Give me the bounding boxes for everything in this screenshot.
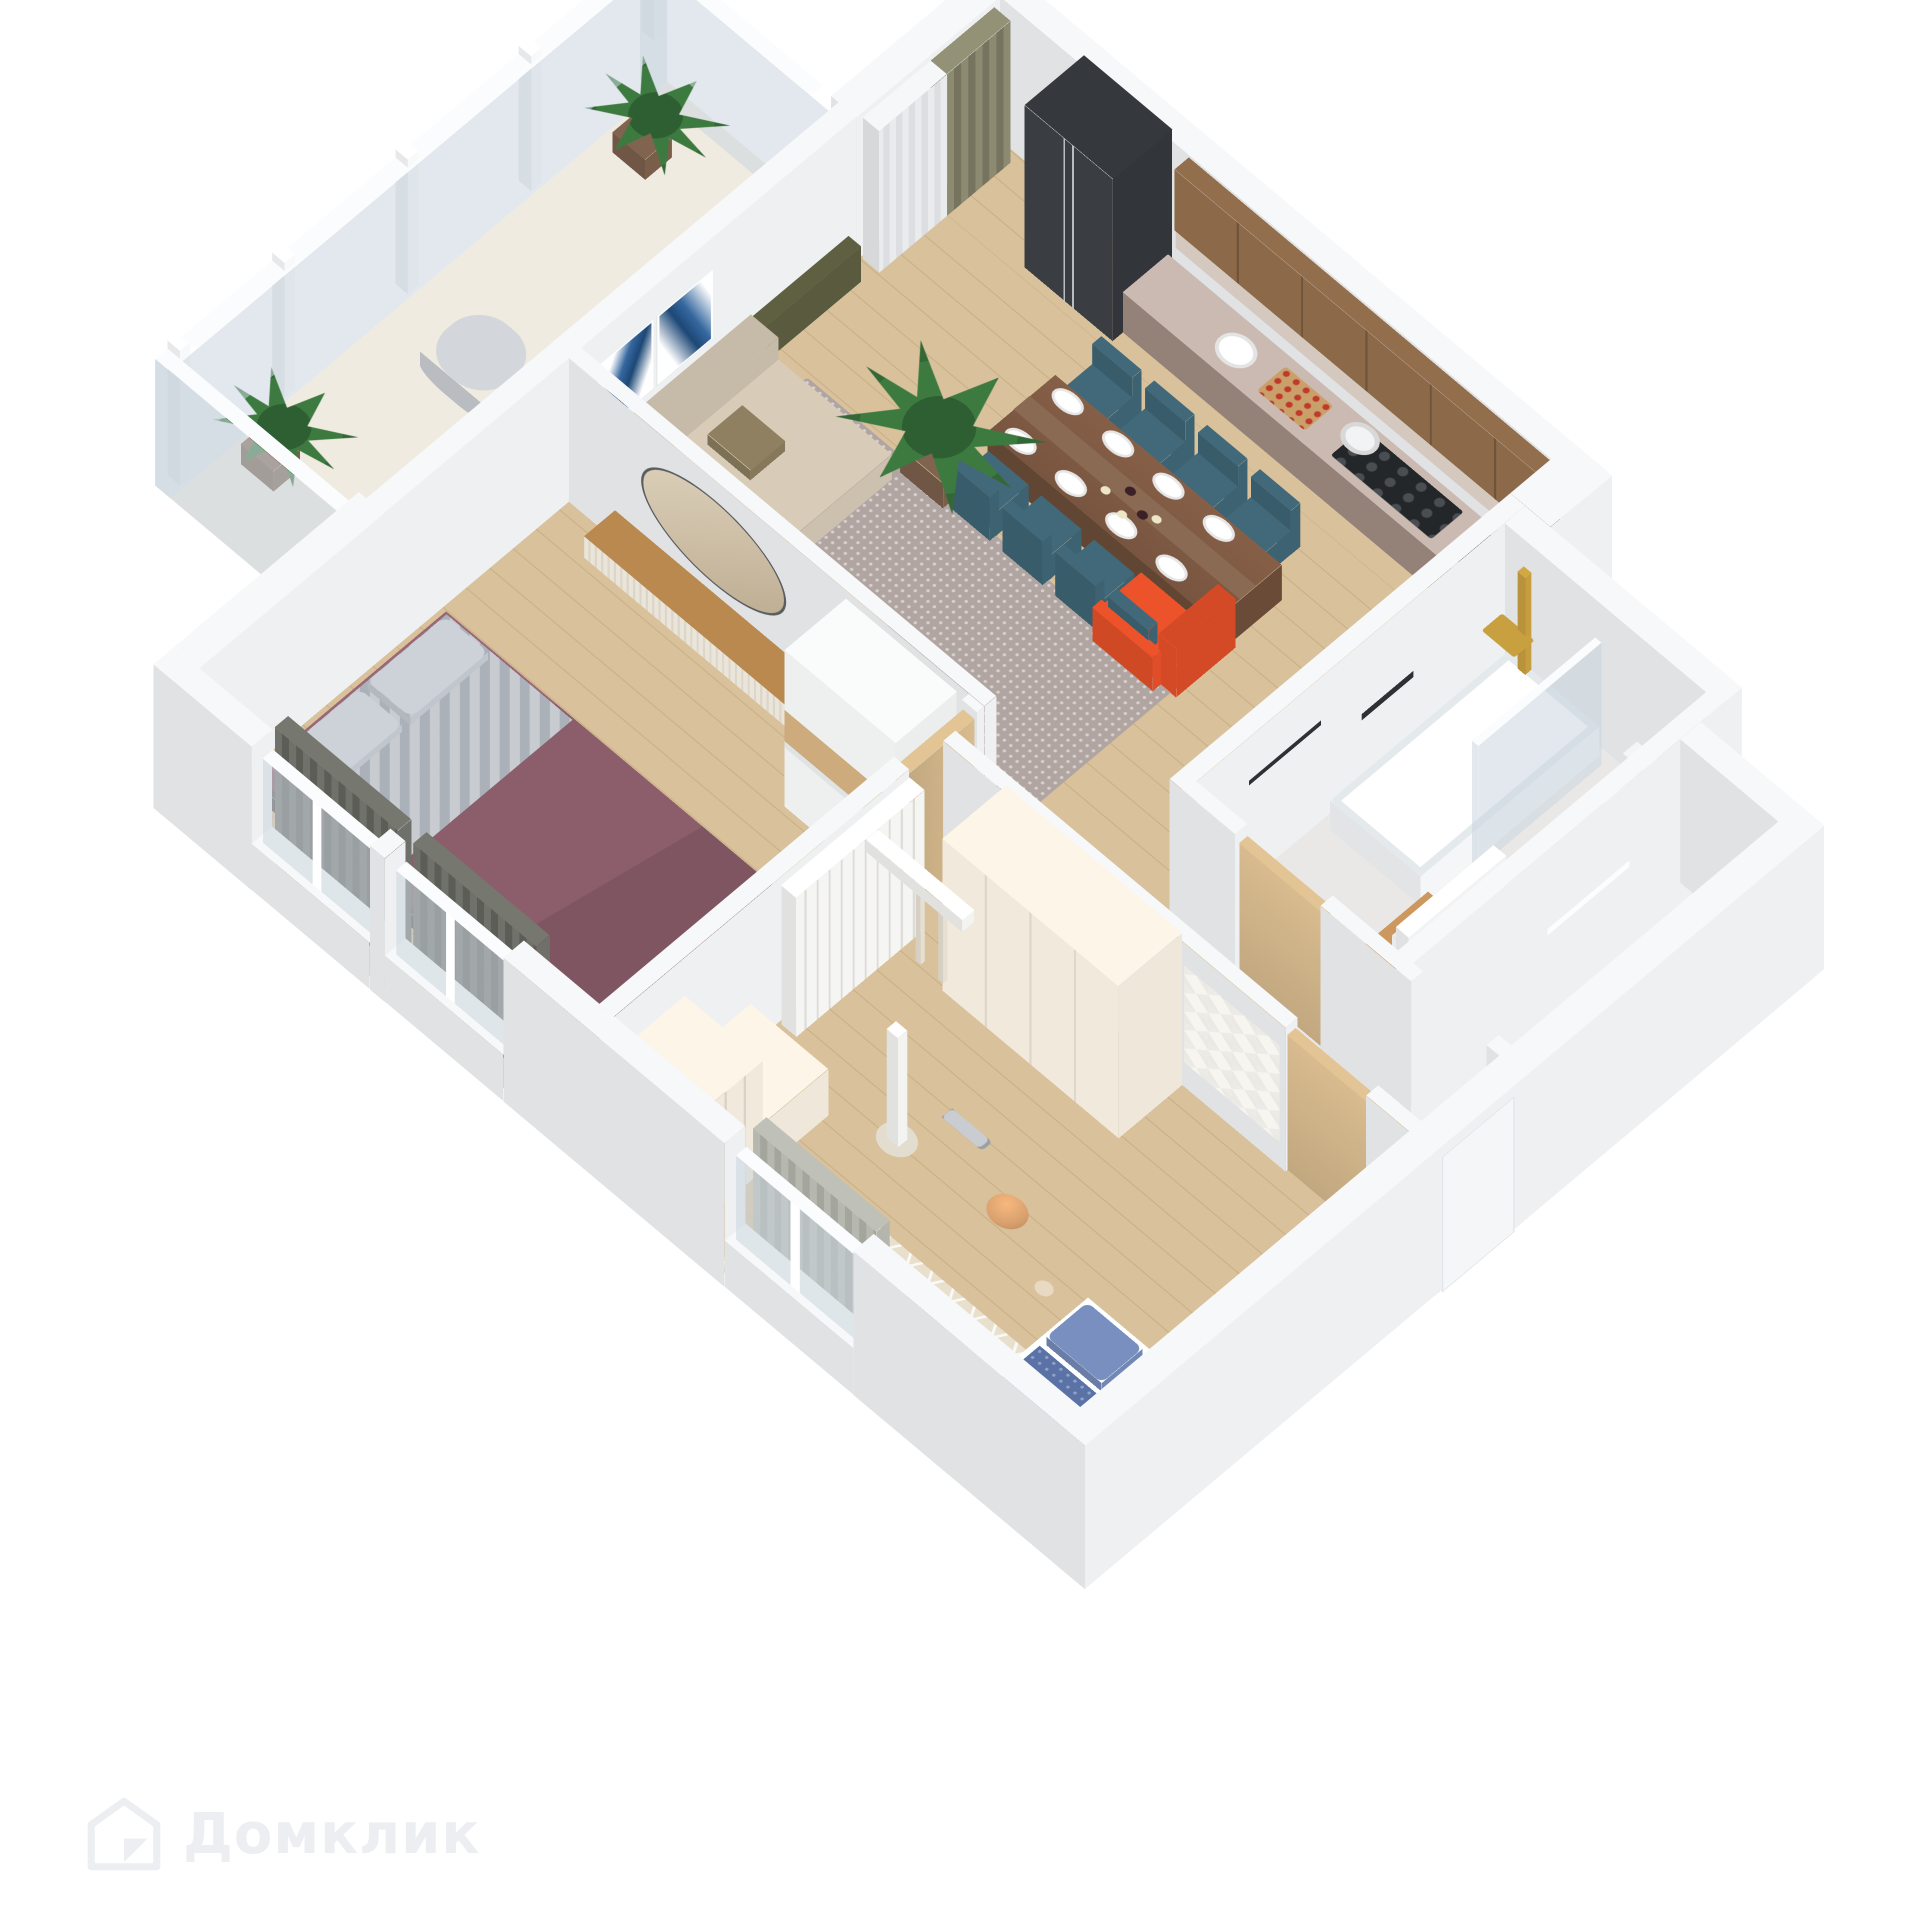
watermark: Домклик <box>85 1795 480 1873</box>
floorplan-screenshot: Домклик <box>0 0 1920 1920</box>
watermark-brand: Домклик <box>183 1802 480 1867</box>
domclick-house-icon <box>85 1795 163 1873</box>
